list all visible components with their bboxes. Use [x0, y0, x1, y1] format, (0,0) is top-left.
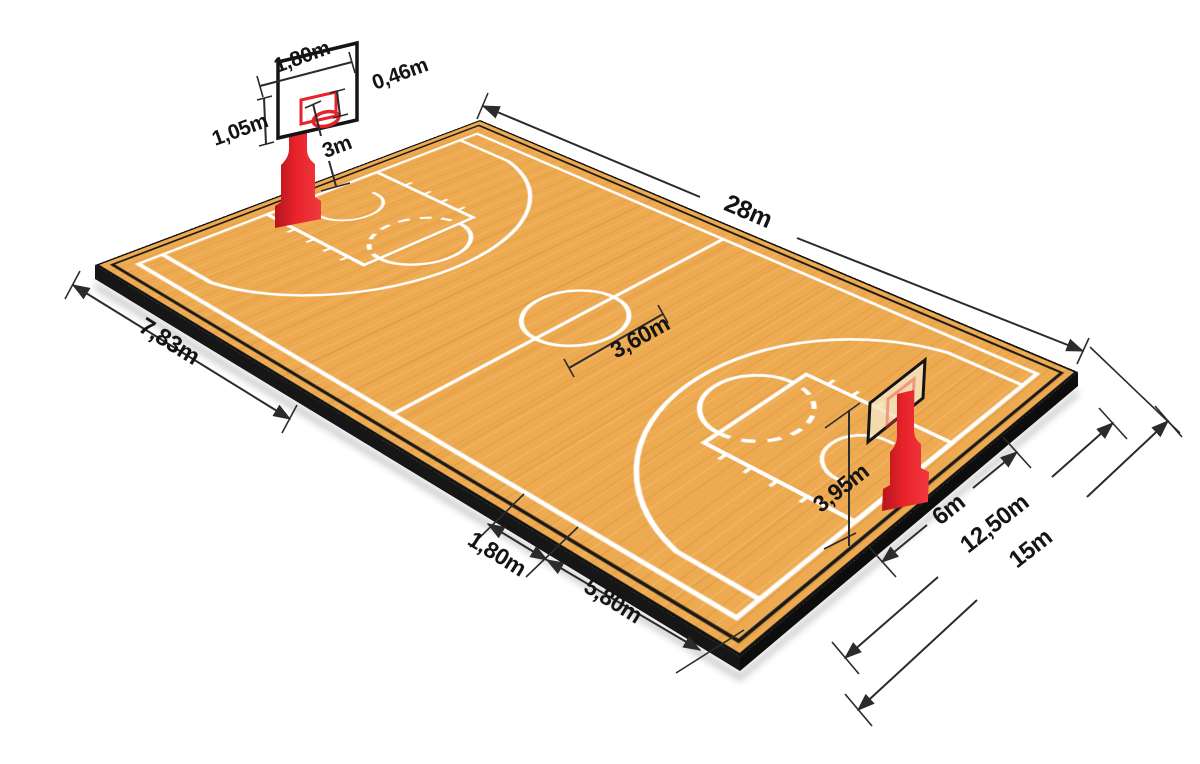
- dim-line-12-50m-a: [845, 577, 938, 658]
- court-diagram: 1,80m 0,46m 1,05m 3m 28m 7,83m 3,60m 1,8…: [0, 0, 1200, 764]
- dim-line-28m-a: [483, 106, 700, 197]
- dim-line-rim-height-b: [329, 161, 336, 186]
- dim-line-28m-b: [797, 238, 1083, 351]
- dim-line-6m-a: [882, 525, 927, 562]
- dim-line-15m-b: [1087, 421, 1168, 497]
- dim-line-15m-a: [858, 600, 977, 710]
- annotation-layer: [0, 0, 1200, 764]
- dim-line-12-50m-b: [1052, 423, 1113, 477]
- right-basket-unit: [868, 360, 929, 511]
- witness-lines: [65, 52, 1182, 726]
- right-backboard: [868, 360, 925, 442]
- dim-line-6m-b: [973, 452, 1017, 488]
